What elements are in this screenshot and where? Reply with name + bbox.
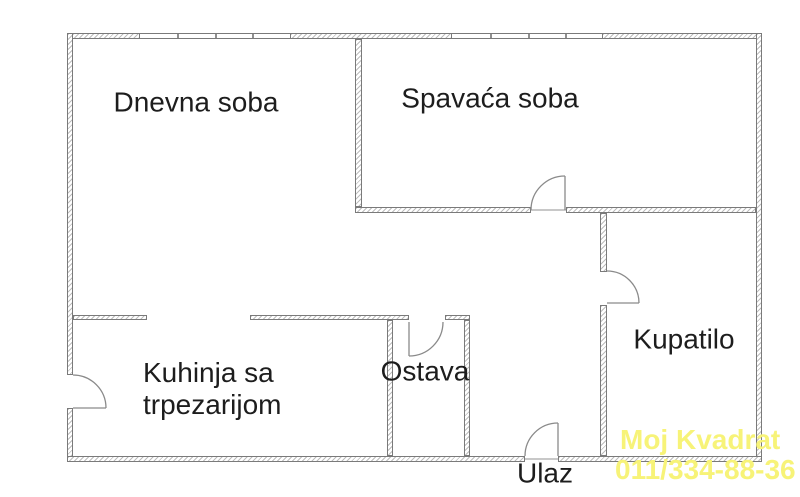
label-bedroom: Spavaća soba — [401, 84, 578, 115]
wall-left-upper — [67, 33, 73, 375]
pantry-door — [409, 322, 443, 356]
bedroom-door-swing-arc — [531, 176, 565, 210]
watermark-brand: Moj Kvadrat — [620, 426, 780, 454]
window-divider — [177, 34, 179, 38]
wall-right — [756, 33, 762, 462]
floorplan-canvas: Dnevna soba Spavaća soba Kuhinja sa trpe… — [0, 0, 800, 497]
label-bathroom: Kupatilo — [633, 325, 734, 356]
wall-bathroom-lower — [600, 305, 607, 456]
kitchen-balcony-door — [73, 375, 106, 408]
wall-living-bedroom-divider — [355, 39, 362, 207]
wall-bedroom-bottom-left — [355, 207, 531, 213]
bedroom-door — [531, 176, 565, 210]
pantry-door-swing-arc — [409, 322, 443, 356]
window-divider — [252, 34, 254, 38]
wall-bottom-left-segment — [67, 456, 525, 462]
wall-kitchen-divider-left — [73, 315, 147, 320]
wall-left-lower — [67, 408, 73, 462]
entrance-door — [525, 423, 558, 456]
wall-kitchen-divider-right — [250, 315, 409, 320]
entrance-door-swing-arc — [525, 423, 558, 456]
window-divider — [490, 34, 492, 38]
wall-top-right-segment — [602, 33, 762, 39]
wall-top-left-segment — [67, 33, 140, 39]
window-divider — [215, 34, 217, 38]
sill-bedroom-door — [531, 209, 566, 211]
kitchen-door-swing-arc — [73, 375, 106, 408]
bathroom-door — [607, 271, 639, 303]
wall-pantry-right — [464, 320, 470, 456]
label-kitchen: Kuhinja sa trpezarijom — [143, 357, 281, 421]
label-entrance: Ulaz — [517, 459, 573, 490]
wall-pantry-left — [387, 320, 393, 456]
label-kitchen-line1: Kuhinja sa — [143, 357, 281, 389]
window-bedroom — [452, 33, 602, 39]
wall-bathroom-upper — [600, 213, 607, 272]
label-living-room: Dnevna soba — [113, 88, 278, 119]
window-divider — [528, 34, 530, 38]
window-divider — [565, 34, 567, 38]
label-kitchen-line2: trpezarijom — [143, 389, 281, 421]
label-pantry: Ostava — [381, 357, 470, 388]
window-living-room — [140, 33, 290, 39]
watermark-phone: 011/334-88-36 — [615, 456, 796, 484]
wall-top-middle-segment — [290, 33, 452, 39]
door-swings-layer — [0, 0, 800, 497]
bathroom-door-swing-arc — [607, 271, 639, 303]
wall-bedroom-bottom-right — [566, 207, 756, 213]
